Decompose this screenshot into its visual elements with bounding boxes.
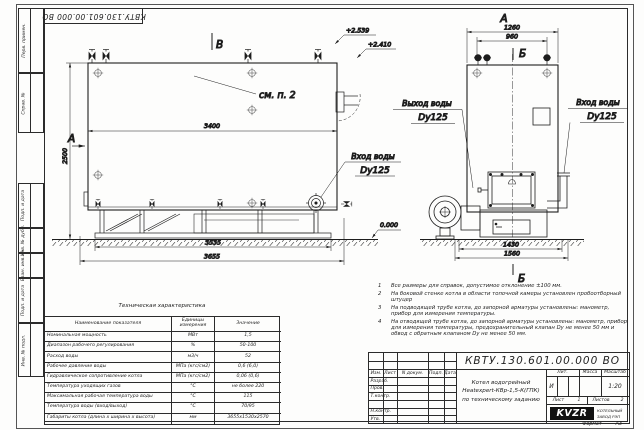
tech-row-unit: °С (172, 383, 215, 393)
tb-sheets-label: Листов (592, 398, 609, 403)
dim-3535: 3535 (205, 240, 221, 247)
main-dimensions (66, 63, 344, 265)
tech-row-name: Габариты котла (длина х ширина х высота) (45, 414, 172, 424)
outlet-label: Выход воды (402, 99, 452, 108)
inlet-dn-main: Dy125 (360, 166, 390, 176)
strip-box-podp-data-1: Подп. и дата (18, 183, 44, 228)
tb-col-izm: Изм. (369, 369, 383, 377)
tb-sheet-label: Лист (553, 398, 565, 403)
base-frame (95, 210, 331, 238)
notes-list: 1 Все размеры для справок, допустимое от… (378, 283, 630, 339)
tb-desc-line1: Котел водогрейный (456, 379, 546, 387)
tech-row-name: Гидравлическое сопротивление котла (45, 373, 172, 383)
kvzr-logo: KVZR (550, 407, 594, 420)
note-text: На отводящей трубе котла, до запорной ар… (391, 319, 630, 338)
strip-box-vzam-inv: Взам. инв. № (18, 253, 44, 278)
note-number: 1 (378, 283, 391, 289)
tech-row-value: 50-100 (215, 342, 281, 352)
burner-fan (429, 196, 480, 239)
section-label-B-top: Б (519, 48, 526, 60)
tech-table: Техническая характеристика Наименование … (44, 299, 280, 425)
tb-lit-value: И (546, 376, 557, 396)
strip-box-sprav: Справ. № (18, 73, 44, 133)
strip-label: Взам. инв. № (22, 250, 27, 281)
tech-row-value: 0,6 (6,0) (215, 363, 281, 373)
tech-row-value: 1,5 (215, 332, 281, 342)
tech-row-value: 115 (215, 393, 281, 403)
dim-1260: 1260 (504, 25, 520, 32)
tb-description: Котел водогрейный Heatexpert-КВр-1,5-К(Г… (456, 369, 546, 423)
tb-col-data: Дата (444, 369, 456, 377)
dim-3655: 3655 (204, 254, 220, 261)
strip-label: Справ. № (22, 92, 27, 114)
strip-box-inv-podl: Инв. № подл. (18, 323, 44, 377)
tb-col-ndoc: N докум. (397, 369, 428, 377)
tech-col-units: Единицы измерения (172, 317, 215, 332)
tech-row-value: 70/95 (215, 403, 281, 413)
format-value: А3 (616, 422, 622, 429)
tech-row-unit: мм (172, 414, 215, 424)
tb-row-tkontr: Т.контр. (369, 392, 397, 400)
tb-sheet-cell: Лист 1 (546, 396, 587, 404)
tech-row-value: 0,06 (0,6) (215, 373, 281, 383)
tech-row-name: Рабочее давление воды (45, 363, 172, 373)
tech-row-name: Номинальная мощность (45, 332, 172, 342)
dim-1560: 1560 (504, 251, 520, 258)
outlet-dn: Dy125 (418, 113, 448, 123)
tb-scale-value: 1:20 (601, 376, 629, 396)
title-block: Изм. Лист N докум. Подп. Дата Разраб. Пр… (368, 352, 630, 424)
tb-row-prov: Пров. (369, 385, 397, 392)
strip-label: Инв. № подл. (22, 334, 27, 366)
tech-row-value: 3655х1530х2570 (215, 414, 281, 424)
tech-row-name: Температура воды (вход/выход) (45, 403, 172, 413)
tech-row-unit: МВт (172, 332, 215, 342)
dim-1430: 1430 (503, 242, 519, 249)
inlet-dn-side: Dy125 (587, 112, 617, 122)
side-dimensions (455, 28, 568, 261)
elev-2539: +2.539 (346, 28, 369, 35)
tb-massa-label: Масса (579, 369, 601, 376)
strip-box-perv-primen: Перв. примен. (18, 8, 44, 73)
strip-box-podp-data-2: Подп. и дата (18, 278, 44, 323)
note-item: 3 На подводящей трубе котла, до запорной… (378, 305, 630, 318)
tech-row-name: Температура уходящих газов (45, 383, 172, 393)
format-label-row: Формат А3 (520, 422, 628, 429)
tech-row-unit: % (172, 342, 215, 352)
tb-logo-row: KVZR КОТЕЛЬНЫЙ ЗАВОД РЭП (546, 404, 629, 423)
kvzr-logo-caption: КОТЕЛЬНЫЙ ЗАВОД РЭП (597, 408, 622, 418)
tb-desc-line3: по техническому заданию (456, 396, 546, 404)
tb-scale-label: Масштаб (601, 369, 629, 376)
tech-row-name: Диапазон рабочего регулирования (45, 342, 172, 352)
tb-row-razrab: Разраб. (369, 377, 397, 385)
note-text: На подводящей трубе котла, до запорной а… (391, 305, 630, 318)
tech-row-value: 52 (215, 352, 281, 362)
note-number: 3 (378, 305, 391, 318)
tb-lit-label: Лит. (546, 369, 579, 376)
furnace-door (478, 172, 535, 208)
safety-valve (89, 50, 96, 64)
format-label: Формат (582, 422, 601, 429)
tech-col-value: Значение (215, 317, 281, 332)
main-view: 3400 2500 3535 3655 В А +2.539 +2.410 см… (52, 28, 401, 266)
tech-row-unit: МПа (кгс/см2) (172, 373, 215, 383)
tb-sheets-cell: Листов 2 (587, 396, 629, 404)
tech-col-name: Наименование показателя (45, 317, 172, 332)
view-label-B: В (216, 39, 223, 51)
tech-row-unit: °С (172, 393, 215, 403)
drawing-sheet: Перв. примен. Справ. № Подп. и дата Инв.… (0, 0, 644, 430)
note-item: 1 Все размеры для справок, допустимое от… (378, 283, 630, 289)
tech-row-name: Максимальная рабочая температура воды (45, 393, 172, 403)
view-label-A-side: А (499, 13, 507, 25)
dim-3400: 3400 (204, 123, 220, 130)
view-label-A-main: А (67, 133, 75, 145)
tb-doc-number: КВТУ.130.601.00.000 ВО (456, 353, 629, 369)
tech-row-unit: м3/ч (172, 352, 215, 362)
dim-960: 960 (506, 34, 518, 41)
tb-row-nkontr: Н.контр. (369, 408, 397, 415)
tb-sheet-value: 1 (577, 398, 580, 403)
tb-sheets-value: 2 (621, 398, 624, 403)
tb-row-utv: Утв. (369, 415, 397, 423)
strip-label: Подп. и дата (22, 190, 27, 221)
tech-row-value: не более 220 (215, 383, 281, 393)
tb-desc-line2: Heatexpert-КВр-1,5-К(ГПК) (456, 387, 546, 395)
boiler-body (88, 63, 337, 210)
side-view: А (393, 13, 628, 285)
tech-row-name: Расход воды (45, 352, 172, 362)
tech-table-title: Техническая характеристика (44, 299, 280, 316)
inlet-label-side: Вход воды (576, 98, 620, 107)
strip-label: Перв. примен. (22, 23, 27, 58)
inlet-label-main: Вход воды (351, 152, 395, 161)
dim-2500: 2500 (62, 148, 69, 164)
base-block (480, 210, 547, 237)
tech-row-unit: МПа (кгс/см2) (172, 363, 215, 373)
elev-0000: 0.000 (380, 222, 398, 229)
note-item: 2 На боковой стенке котла в области топо… (378, 291, 630, 304)
note-text: На боковой стенке котла в области топочн… (391, 291, 630, 304)
tb-col-list: Лист (383, 369, 397, 377)
elev-2410: +2.410 (368, 42, 391, 49)
note-text: Все размеры для справок, допустимое откл… (391, 283, 562, 289)
note-item: 4 На отводящей трубе котла, до запорной … (378, 319, 630, 338)
tech-row-unit: °С (172, 403, 215, 413)
strip-label: Подп. и дата (22, 285, 27, 316)
see-note-label: см. п. 2 (259, 90, 296, 101)
note-number: 4 (378, 319, 391, 338)
tb-col-podp: Подп. (428, 369, 444, 377)
note-number: 2 (378, 291, 391, 304)
